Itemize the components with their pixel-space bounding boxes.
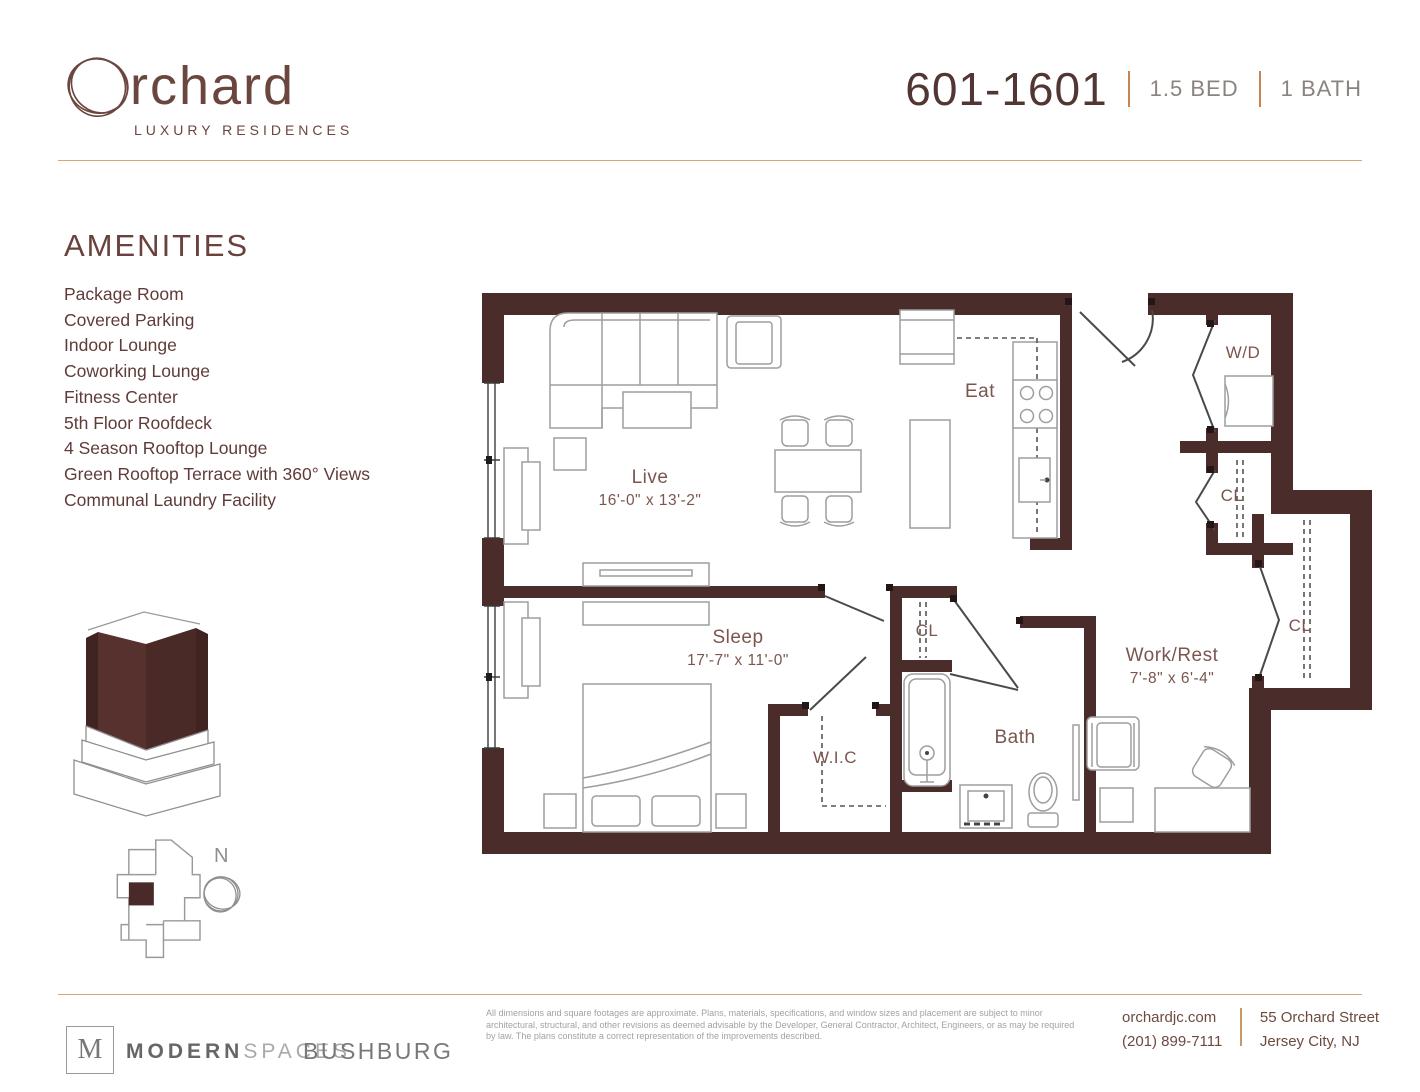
bathtub — [904, 674, 950, 786]
amenities-list: Package Room Covered Parking Indoor Loun… — [64, 282, 370, 513]
phone-number: (201) 899-7111 — [1122, 1030, 1222, 1054]
dresser — [583, 563, 709, 586]
footer-rule — [58, 994, 1362, 995]
address-street: 55 Orchard Street — [1260, 1006, 1379, 1030]
divider — [1128, 71, 1130, 107]
amenities-title: AMENITIES — [64, 228, 370, 264]
room-label-workrest: Work/Rest — [1126, 645, 1219, 666]
coffee-table — [623, 392, 691, 428]
room-label-bath: Bath — [994, 727, 1035, 748]
north-label: N — [214, 845, 228, 867]
amenity-item: 4 Season Rooftop Lounge — [64, 436, 370, 462]
amenity-item: Fitness Center — [64, 385, 370, 411]
dining-set — [775, 416, 861, 526]
unit-header: 601-1601 1.5 BED 1 BATH — [905, 62, 1362, 116]
brand-tagline: LUXURY RESIDENCES — [134, 122, 353, 138]
room-label-cl-far: CL — [1289, 616, 1312, 635]
modernspaces-logo-icon: M — [66, 1026, 114, 1074]
divider — [1240, 1008, 1242, 1046]
amenities-section: AMENITIES Package Room Covered Parking I… — [64, 228, 370, 513]
stool — [1188, 742, 1237, 791]
amenity-item: Covered Parking — [64, 308, 370, 334]
refrigerator — [900, 310, 954, 364]
brand-name: rchard — [130, 55, 295, 117]
toilet — [1028, 773, 1058, 827]
closet-rod — [1304, 520, 1310, 682]
nightstand — [544, 794, 576, 828]
kitchen-sink — [1019, 458, 1050, 502]
flyer-page: rchard LUXURY RESIDENCES 601-1601 1.5 BE… — [0, 0, 1420, 1092]
north-compass-icon: N — [192, 844, 250, 924]
amenity-item: Communal Laundry Facility — [64, 488, 370, 514]
room-dims-live: 16'-0" x 13'-2" — [599, 492, 702, 509]
unit-bath-count: 1 BATH — [1281, 76, 1362, 102]
nightstand — [716, 794, 746, 828]
website-link: orchardjc.com — [1122, 1006, 1222, 1030]
kitchen-island — [910, 420, 950, 528]
room-label-cl-upper: CL — [1221, 486, 1244, 505]
washer-dryer-unit — [1225, 376, 1273, 426]
address-city: Jersey City, NJ — [1260, 1030, 1379, 1054]
keyplan-unit-highlight — [129, 882, 154, 905]
bed — [583, 684, 711, 832]
lounge-chair — [1087, 717, 1139, 770]
room-dims-workrest: 7'-8" x 6'-4" — [1130, 670, 1215, 687]
radiator-unit — [504, 448, 540, 698]
side-table — [554, 438, 586, 470]
header-rule — [58, 160, 1362, 161]
room-label-live: Live — [632, 467, 669, 488]
dresser — [583, 602, 709, 625]
shower-panel — [1073, 725, 1079, 800]
bushburg-wordmark: BUSHBURG — [303, 1038, 453, 1065]
bathroom-vanity — [960, 785, 1012, 828]
kitchen-counter — [957, 338, 1057, 538]
room-dims-sleep: 17'-7" x 11'-0" — [687, 652, 789, 669]
divider — [1259, 71, 1261, 107]
room-label-eat: Eat — [965, 381, 995, 402]
desk — [1155, 788, 1250, 832]
unit-number: 601-1601 — [905, 62, 1107, 116]
unit-bed-count: 1.5 BED — [1150, 76, 1239, 102]
amenity-item: Indoor Lounge — [64, 333, 370, 359]
room-label-wd: W/D — [1226, 343, 1261, 362]
room-label-wic: W.I.C — [813, 748, 857, 767]
brand-logo: rchard LUXURY RESIDENCES — [58, 46, 353, 138]
legal-disclaimer: All dimensions and square footages are a… — [486, 1008, 1078, 1043]
building-isometric-icon — [68, 592, 238, 822]
side-table — [1100, 788, 1133, 822]
room-label-cl-hall: CL — [916, 621, 939, 640]
modernspaces-initial: M — [78, 1034, 103, 1066]
stove — [1013, 380, 1057, 428]
armchair — [727, 316, 781, 368]
amenity-item: Coworking Lounge — [64, 359, 370, 385]
room-label-sleep: Sleep — [712, 627, 763, 648]
amenity-item: Package Room — [64, 282, 370, 308]
orchard-o-scribble-icon — [58, 46, 138, 126]
floorplan-drawing: Live 16'-0" x 13'-2" Eat W/D CL CL Sleep… — [480, 280, 1380, 880]
contact-block: orchardjc.com (201) 899-7111 55 Orchard … — [1122, 1006, 1379, 1054]
amenity-item: Green Rooftop Terrace with 360° Views — [64, 462, 370, 488]
amenity-item: 5th Floor Roofdeck — [64, 411, 370, 437]
